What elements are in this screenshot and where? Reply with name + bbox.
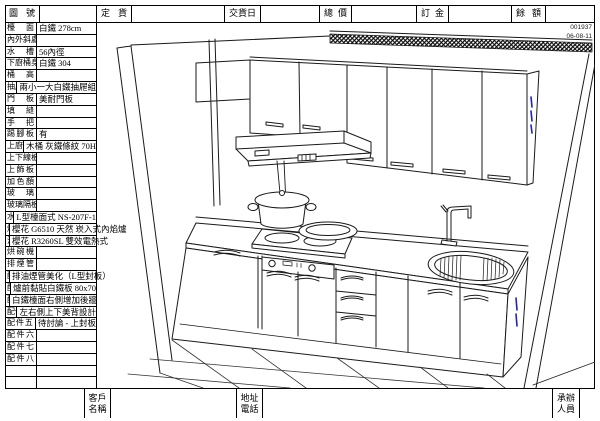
footer-value-0 — [111, 389, 237, 418]
spec-row-11: 上下線板 — [5, 153, 96, 165]
pot-handle — [248, 204, 258, 211]
spec-row-27: 配件七 — [5, 342, 96, 354]
spec-value-18: 櫻花 R3260SL 雙效電熱式 — [10, 236, 108, 247]
spec-value-10: 木桶 灰鐵條紋 70H — [24, 141, 96, 152]
kitchen-perspective-drawing: 001937 06-08-11 — [97, 23, 595, 388]
header-value-2 — [261, 5, 320, 22]
spec-value-6: 美耐門板 — [37, 94, 96, 105]
footer-label-1: 地址電話 — [237, 389, 263, 418]
hood-switch-panel — [255, 150, 269, 156]
spec-value-24: 左右側上下美背設計 — [17, 307, 96, 318]
upper-cabinet-end-panel — [527, 71, 539, 185]
soffit-beam — [330, 31, 592, 52]
spec-label-8: 手把 — [5, 118, 37, 129]
header-label-0: 圖號 — [5, 5, 40, 22]
document-number-block: 001937 06-08-11 — [566, 24, 592, 42]
upper-cabinet-note — [531, 97, 532, 133]
ceiling-line — [131, 36, 330, 45]
spec-label-6: 門板 — [5, 94, 37, 105]
spec-row-10: 上廚桶身木桶 灰鐵條紋 70H — [5, 141, 96, 153]
spec-row-24: 配件四左右側上下美背設計 — [5, 307, 96, 319]
spec-label-5: 抽屜 — [5, 82, 17, 93]
wok-pan — [299, 222, 357, 240]
footer-label-0: 客戶名稱 — [85, 389, 111, 418]
spec-value-13 — [37, 177, 96, 188]
header-label-3: 總價 — [320, 5, 352, 22]
spec-value-27 — [37, 342, 96, 353]
kitchen-drawing-svg — [97, 23, 595, 388]
spec-label-0: 檯面 — [5, 23, 37, 34]
spec-value-16: L型檯面式 NS-207F-1 — [14, 212, 96, 223]
spec-label-30 — [5, 377, 37, 388]
spec-value-8 — [37, 118, 96, 129]
spec-row-1: 內外斜處 — [5, 35, 96, 47]
spec-row-8: 手把 — [5, 118, 96, 130]
spec-label-13: 加色顏 — [5, 177, 37, 188]
spec-label-7: 填縫 — [5, 106, 37, 117]
kitchen-order-sheet: 圖號定貨日交貨日總價訂金餘額 檯面白鐵 278cm內外斜處水槽56內徑下廚桶身白… — [0, 0, 600, 421]
spec-label-28: 配件八 — [5, 354, 37, 365]
spec-row-22: 配件二爐前黏貼白鐵板 80x70 — [5, 283, 96, 295]
spec-value-22: 爐前黏貼白鐵板 80x70 — [11, 283, 96, 294]
spec-row-23: 配件三白鐵檯面右側增加後牆 — [5, 295, 96, 307]
spec-value-4 — [37, 70, 96, 81]
spec-row-14: 玻璃 — [5, 188, 96, 200]
spec-row-5: 抽屜兩小一大白鐵抽屜組 — [5, 82, 96, 94]
spec-value-14 — [37, 188, 96, 199]
doc-number: 001937 — [566, 24, 592, 33]
spec-value-29 — [37, 366, 96, 377]
header-label-4: 訂金 — [417, 5, 449, 22]
spec-value-19 — [37, 247, 96, 258]
footer-value-1 — [263, 389, 553, 418]
spec-label-26: 配件六 — [5, 330, 37, 341]
spec-value-3: 白鐵 304 — [37, 58, 96, 69]
pot-handle — [306, 204, 316, 211]
spec-row-6: 門板美耐門板 — [5, 94, 96, 106]
spec-label-2: 水槽 — [5, 47, 37, 58]
spec-value-20 — [37, 259, 96, 270]
spec-value-1 — [37, 35, 96, 46]
spec-label-12: 上飾板 — [5, 165, 37, 176]
spec-label-10: 上廚桶身 — [5, 141, 24, 152]
hood-vent — [298, 154, 316, 161]
header-label-2: 交貨日 — [225, 5, 261, 22]
footer-row: 客戶名稱地址電話承辦人員 — [5, 388, 595, 418]
spec-label-19: 烘碗機 — [5, 247, 37, 258]
spec-row-3: 下廚桶身白鐵 304 — [5, 58, 96, 70]
spec-label-20: 排煙管 — [5, 259, 37, 270]
spec-label-15: 玻璃隔板 — [5, 200, 37, 211]
upper-left-cabinet-box — [196, 60, 250, 102]
spec-row-26: 配件六 — [5, 330, 96, 342]
footer-label-0-line1: 客戶 — [85, 393, 110, 404]
spec-value-5: 兩小一大白鐵抽屜組 — [17, 82, 96, 93]
spec-label-3: 下廚桶身 — [5, 58, 37, 69]
spec-row-13: 加色顏 — [5, 177, 96, 189]
spec-row-19: 烘碗機 — [5, 247, 96, 259]
spec-label-4: 桶高 — [5, 70, 37, 81]
footer-value-2 — [580, 389, 595, 418]
spec-label-9: 踢腳板 — [5, 129, 37, 140]
spec-row-20: 排煙管 — [5, 259, 96, 271]
upper-cabinets — [250, 57, 539, 185]
spec-value-26 — [37, 330, 96, 341]
header-value-0 — [40, 5, 97, 22]
spec-value-0: 白鐵 278cm — [37, 23, 96, 34]
spec-row-15: 玻璃隔板 — [5, 200, 96, 212]
spec-row-29 — [5, 366, 96, 378]
header-value-1 — [132, 5, 225, 22]
header-label-5: 餘額 — [512, 5, 546, 22]
spec-label-1: 內外斜處 — [5, 35, 37, 46]
spec-value-12 — [37, 165, 96, 176]
spec-value-17: 櫻花 G6510 天然 崁入式內焰爐 — [10, 224, 127, 235]
spec-table: 檯面白鐵 278cm內外斜處水槽56內徑下廚桶身白鐵 304桶高抽屜兩小一大白鐵… — [5, 23, 97, 388]
footer-label-2-line1: 承辦 — [553, 393, 579, 404]
spec-row-4: 桶高 — [5, 70, 96, 82]
spec-row-7: 填縫 — [5, 106, 96, 118]
header-label-1: 定貨日 — [97, 5, 132, 22]
footer-label-0-line2: 名稱 — [85, 404, 110, 415]
spec-row-9: 踢腳板有 — [5, 129, 96, 141]
spec-row-18: 油機櫻花 R3260SL 雙效電熱式 — [5, 236, 96, 248]
header-value-5 — [546, 5, 595, 22]
spec-row-21: 配件一排油煙管美化（L型封板） — [5, 271, 96, 283]
doc-date: 06-08-11 — [566, 33, 592, 42]
spec-value-25: 待討論 - 上封板 — [36, 318, 96, 329]
footer-label-2-line2: 人員 — [553, 404, 579, 415]
spec-label-24: 配件四 — [5, 307, 17, 318]
spec-row-12: 上飾板 — [5, 165, 96, 177]
spec-label-29 — [5, 366, 37, 377]
spec-value-30 — [37, 377, 96, 388]
spec-row-28: 配件八 — [5, 354, 96, 366]
spec-label-27: 配件七 — [5, 342, 37, 353]
spec-row-30 — [5, 377, 96, 388]
spec-row-17: 爐具櫻花 G6510 天然 崁入式內焰爐 — [5, 224, 96, 236]
spec-label-11: 上下線板 — [5, 153, 37, 164]
spec-row-25: 配件五待討論 - 上封板 — [5, 318, 96, 330]
spec-label-16: 水龍頭 — [5, 212, 14, 223]
spec-row-16: 水龍頭L型檯面式 NS-207F-1 — [5, 212, 96, 224]
spec-value-11 — [37, 153, 96, 164]
footer-blank-cell — [5, 389, 85, 418]
spec-value-21: 排油煙管美化（L型封板） — [10, 271, 111, 282]
lid-knob — [280, 191, 285, 196]
spec-row-0: 檯面白鐵 278cm — [5, 23, 96, 35]
footer-label-1-line2: 電話 — [237, 404, 262, 415]
header-row: 圖號定貨日交貨日總價訂金餘額 — [5, 5, 595, 23]
spec-value-2: 56內徑 — [37, 47, 96, 58]
spec-value-9: 有 — [37, 129, 96, 140]
footer-label-2: 承辦人員 — [553, 389, 580, 418]
footer-label-1-line1: 地址 — [237, 393, 262, 404]
spec-value-7 — [37, 106, 96, 117]
header-value-3 — [352, 5, 417, 22]
spec-label-14: 玻璃 — [5, 188, 37, 199]
header-value-4 — [449, 5, 512, 22]
duct-column — [209, 39, 220, 206]
left-wall-pillar — [117, 46, 172, 373]
spec-value-15 — [37, 200, 96, 211]
spec-row-2: 水槽56內徑 — [5, 47, 96, 59]
spec-value-28 — [37, 354, 96, 365]
spec-value-23: 白鐵檯面右側增加後牆 — [10, 295, 97, 306]
spec-label-25: 配件五 — [5, 318, 36, 329]
